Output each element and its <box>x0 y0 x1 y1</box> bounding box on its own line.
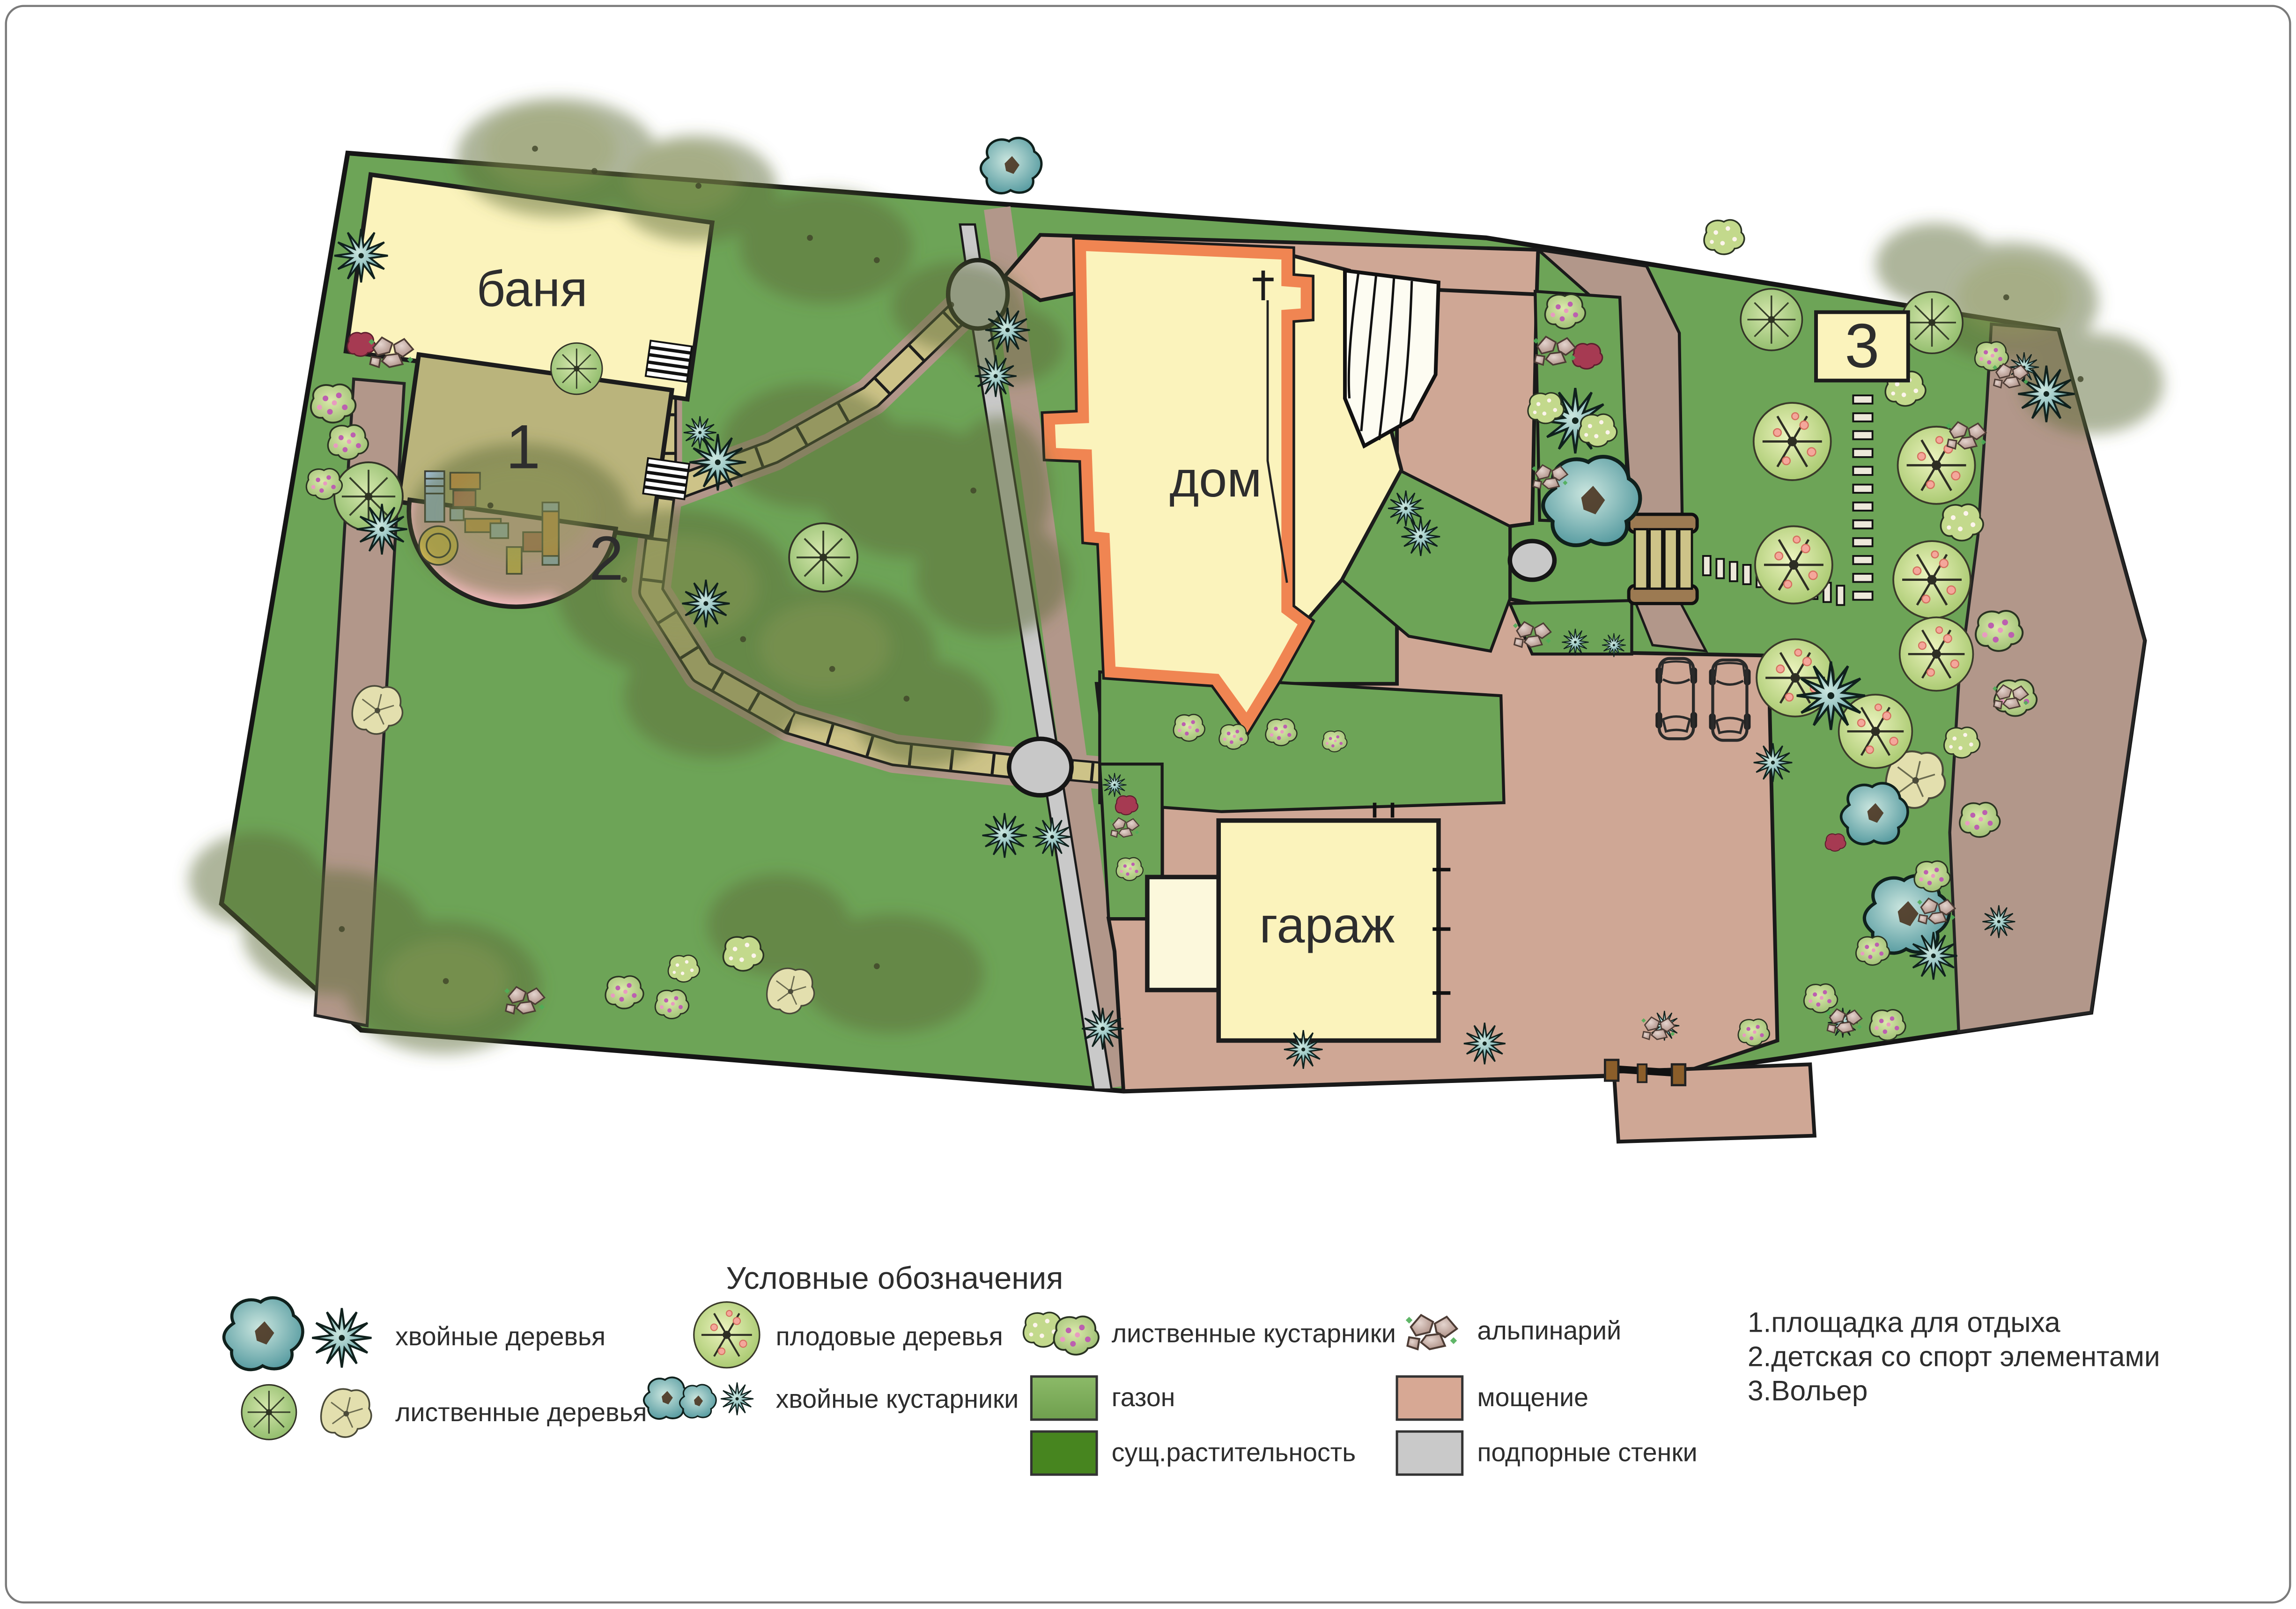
existing-vegetation-swatch <box>1031 1431 1097 1475</box>
legend-label: лиственные деревья <box>395 1398 647 1427</box>
coniferous-tree <box>1841 783 1908 844</box>
fruit-trees-icon <box>694 1302 760 1368</box>
garage-annex <box>1147 877 1218 990</box>
fruit-tree <box>1893 541 1971 618</box>
legend-label: лиственные кустарники <box>1112 1319 1396 1348</box>
legend-label: хвойные деревья <box>395 1322 605 1351</box>
deciduous-tree <box>551 343 602 394</box>
fruit-tree <box>1754 403 1831 480</box>
legend-label: газон <box>1112 1383 1175 1412</box>
gate-post <box>1605 1060 1618 1081</box>
gate-post <box>1672 1064 1685 1085</box>
bridge-planks <box>1635 529 1692 589</box>
banya-label: баня <box>476 260 587 317</box>
house-label: дом <box>1169 451 1262 507</box>
orchard-tree <box>1741 289 1802 350</box>
legend-note: 2.детская со спорт элементами <box>1748 1340 2160 1372</box>
legend-label: мощение <box>1477 1383 1588 1412</box>
red-leaf-shrub <box>1573 344 1602 369</box>
landscape-plan-page: баня дом гараж 1 2 3 Условные обозначени… <box>0 0 2296 1609</box>
lawn-swatch <box>1031 1377 1097 1420</box>
red-leaf-shrub <box>1115 796 1138 815</box>
retaining-walls-swatch <box>1397 1431 1462 1475</box>
round-platform-east <box>1510 541 1554 580</box>
red-leaf-shrub <box>1825 834 1846 851</box>
gate-post <box>1638 1064 1646 1082</box>
legend-label: сущ.растительность <box>1112 1438 1356 1467</box>
stairs-lower <box>643 458 689 499</box>
landscape-plan: баня дом гараж 1 2 3 Условные обозначени… <box>0 0 2296 1609</box>
deciduous-tree <box>789 523 857 592</box>
legend-note: 1.площадка для отдыха <box>1748 1306 2060 1338</box>
legend-note: 3.Вольер <box>1748 1374 1868 1406</box>
legend-label: хвойные кустарники <box>776 1384 1019 1413</box>
legend-label: плодовые деревья <box>776 1322 1003 1351</box>
stairs-upper <box>646 341 692 382</box>
fruit-tree <box>1755 526 1832 603</box>
fruit-tree <box>1900 617 1973 691</box>
area2-label: 2 <box>589 524 624 593</box>
coniferous-tree <box>981 138 1041 193</box>
paving-swatch <box>1397 1377 1462 1420</box>
legend-label: альпинарий <box>1477 1316 1621 1345</box>
garage-label: гараж <box>1259 897 1395 953</box>
area1-label: 1 <box>506 412 540 482</box>
area3-label: 3 <box>1845 311 1879 381</box>
legend-label: подпорные стенки <box>1477 1438 1697 1467</box>
gate <box>1605 1060 1685 1085</box>
round-platform-middle <box>1009 739 1071 795</box>
orchard-tree <box>1901 292 1963 353</box>
legend-title: Условные обозначения <box>726 1261 1063 1296</box>
